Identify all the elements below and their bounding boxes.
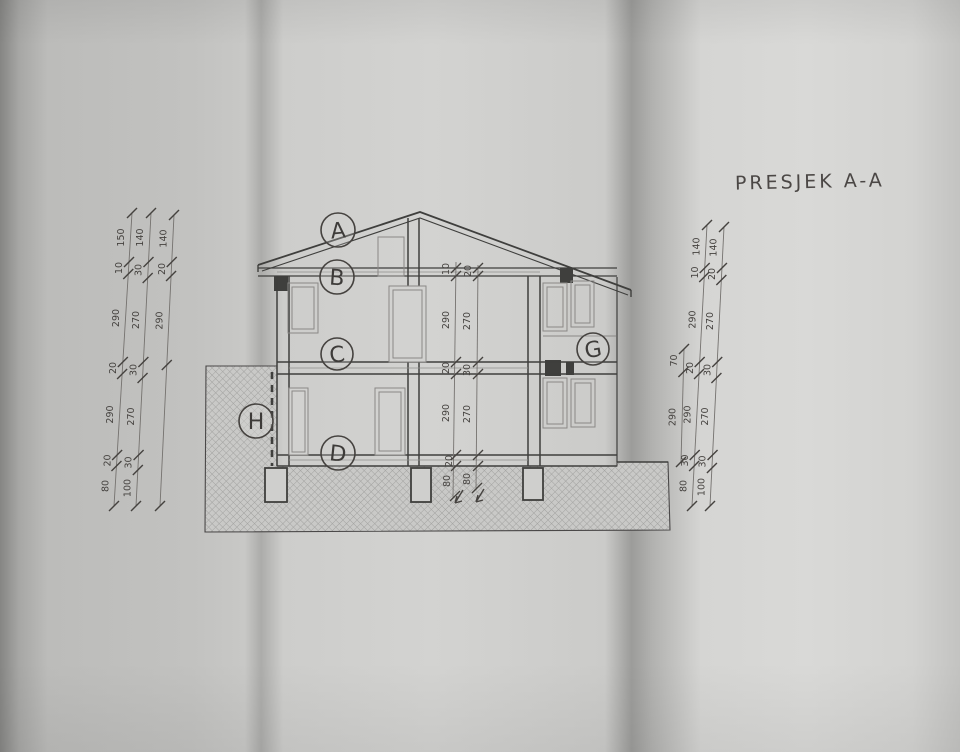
footing-right (523, 468, 543, 500)
extension-lower-windows (543, 378, 595, 428)
dimension-value: 290 (668, 408, 679, 426)
dimension-value: 290 (111, 309, 122, 327)
dimension-value: 20 (108, 362, 119, 374)
dimension-value: 290 (441, 404, 452, 422)
dimension-value: 30 (702, 364, 713, 376)
label-circle-h: H (239, 404, 273, 438)
drawing-title: PRESJEK A-A (735, 169, 885, 194)
dim-chain-left-3: 14020290 (154, 210, 179, 511)
dimension-value: 10 (690, 266, 701, 278)
footing-left (265, 468, 287, 502)
dimension-value: 20 (707, 268, 718, 280)
dimension-value: 100 (697, 478, 708, 496)
dimension-value: 30 (680, 454, 691, 466)
label-circle-b: B (320, 260, 354, 294)
right-exterior-wall (528, 276, 540, 466)
dimension-value: 270 (131, 311, 142, 329)
dimension-value: 70 (669, 354, 680, 366)
dimension-value: 140 (691, 237, 702, 255)
dimension-value: 30 (462, 364, 473, 376)
dimension-value: 30 (129, 364, 140, 376)
dimension-value: 20 (463, 265, 474, 277)
roof-outline (258, 212, 631, 297)
scanned-page: PRESJEK A-A (0, 0, 960, 752)
dimension-value: 290 (688, 310, 699, 328)
dimension-value: 270 (126, 407, 137, 425)
dimension-value: 150 (116, 228, 127, 246)
label-circle-g: G (577, 333, 609, 365)
dimension-value: 80 (442, 475, 453, 487)
dimension-value: 20 (102, 454, 113, 466)
dimension-value: 10 (441, 263, 452, 275)
svg-text:C: C (328, 342, 346, 369)
left-exterior-wall (277, 276, 289, 466)
chimney (378, 237, 404, 276)
dimension-value: 290 (682, 405, 693, 423)
dimension-value: 30 (124, 456, 135, 468)
dimension-value: 80 (462, 473, 473, 485)
center-dim-lines (453, 262, 478, 498)
svg-text:A: A (330, 218, 347, 244)
walls (272, 218, 617, 466)
label-circle-c: C (321, 338, 353, 370)
label-circle-a: A (321, 213, 355, 247)
lower-left-door (289, 388, 308, 455)
terrain-hatch (205, 366, 670, 532)
label-circle-d: D (321, 436, 355, 470)
dimension-value: 270 (700, 407, 711, 425)
dimension-value: 100 (122, 479, 133, 497)
dimension-value: 20 (157, 263, 168, 275)
lower-center-door (375, 388, 405, 455)
dim-chain-right-3: 140202703027030100 (697, 222, 730, 511)
dimension-value: 140 (709, 238, 720, 256)
section-drawing: PRESJEK A-A (0, 0, 960, 752)
upper-center-door (389, 286, 426, 362)
dimension-value: 290 (154, 311, 165, 329)
dimension-value: 140 (135, 228, 146, 246)
dimension-value: 80 (101, 480, 112, 492)
dimension-value: 30 (134, 264, 145, 276)
extension-upper-windows (543, 281, 594, 331)
dimension-value: 270 (462, 405, 473, 423)
svg-text:H: H (248, 410, 265, 435)
dimension-value: 290 (441, 311, 452, 329)
dimension-value: 140 (158, 229, 169, 247)
svg-text:D: D (328, 441, 347, 468)
dimension-value: 30 (698, 455, 709, 467)
dimension-value: 20 (441, 362, 452, 374)
dimension-value: 20 (444, 455, 455, 467)
dimension-value: 20 (685, 362, 696, 374)
dimension-value: 270 (462, 312, 473, 330)
dimension-value: 290 (105, 405, 116, 423)
dimension-value: 10 (114, 262, 125, 274)
dim-chain-left-2: 140302703027030100 (122, 208, 156, 511)
svg-text:B: B (328, 266, 345, 292)
dimension-value: 270 (705, 312, 716, 330)
dimension-value: 80 (679, 480, 690, 492)
footing-center (411, 468, 431, 502)
